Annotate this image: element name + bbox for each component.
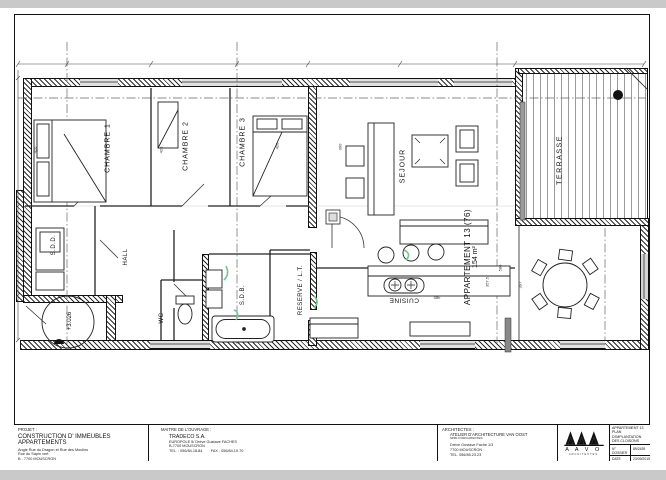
level-mark-text: +3.026 [67, 312, 73, 331]
room-label-cuisine: CUISINE [389, 297, 419, 304]
projet-label: PROJET : [18, 427, 144, 432]
terrace-corner-line [626, 68, 648, 90]
kitchen-counters [310, 318, 470, 338]
bathtub [212, 316, 274, 342]
aavo-logo-icon [564, 430, 604, 446]
room-label-sdd: S.D.D. [51, 235, 57, 256]
titleblock-maitre: MAITRE DE L'OUVRAGE : TRADECO S.A. EUROP… [148, 425, 437, 461]
apartment-label: APPARTEMENT 13 (76) 154 m² [463, 209, 479, 305]
room-label-terrasse: TERRASSE [557, 135, 564, 185]
maitre-label: MAITRE DE L'OUVRAGE : [161, 427, 433, 432]
dim-text: 397 [518, 282, 523, 289]
dim-text: 420 [159, 147, 164, 154]
room-label-chambre2: CHAMBRE 2 [183, 121, 190, 171]
titleblock-info: APPARTEMENT 13 PLAN D'IMPLANTATION DES C… [609, 425, 650, 461]
toilet [176, 296, 194, 324]
floor-plan: CHAMBRE 1 CHAMBRE 2 CHAMBRE 3 SEJOUR TER… [14, 14, 650, 424]
drawing-title: APPARTEMENT 13 PLAN D'IMPLANTATION DES C… [610, 425, 650, 445]
terrace-column [613, 90, 623, 100]
dim-text: 420 [275, 143, 280, 150]
dossier-label: N° DOSSIER [610, 445, 631, 455]
architectes-line3: TEL. 056/85.23.23 [450, 453, 553, 458]
kitchen-island [368, 244, 510, 296]
room-label-chambre1: CHAMBRE 1 [105, 123, 112, 173]
dossier-row: N° DOSSIER 89/2439 [610, 445, 650, 456]
dim-text: 480 [434, 296, 441, 301]
room-label-reserve: RESERVE / L.T. [298, 265, 304, 315]
apartment-name: APPARTEMENT 13 (76) [463, 209, 472, 305]
dim-text: 357.5 [485, 277, 490, 287]
room-label-sejour: SEJOUR [400, 149, 407, 183]
shower-sdd [36, 228, 64, 290]
dim-text: 390 [338, 144, 343, 151]
scanned-drawing-page: CHAMBRE 1 CHAMBRE 2 CHAMBRE 3 SEJOUR TER… [0, 0, 666, 480]
maitre-line3: TEL. : 056/84.18.84 FAX : 056/84.19.70 [169, 449, 433, 454]
title-block: PROJET : CONSTRUCTION D' IMMEUBLES APPAR… [14, 424, 650, 461]
date-value: 23/09/2015 [631, 456, 650, 461]
titleblock-projet: PROJET : CONSTRUCTION D' IMMEUBLES APPAR… [14, 425, 148, 461]
sliding-glass-door [520, 102, 525, 220]
dim-text: 420 [33, 147, 38, 154]
vanity-sdb [206, 270, 222, 308]
room-label-chambre3: CHAMBRE 3 [240, 117, 247, 167]
dining-table [532, 249, 600, 318]
projet-line3: B - 7700 MOUSCRON [18, 457, 144, 461]
titleblock-architectes: ARCHITECTES : ATELIER D'ARCHITECTURE VAN… [437, 425, 557, 461]
room-label-hall: HALL [123, 248, 129, 265]
drawing-title-line3: DES CLOISONS [612, 439, 648, 443]
pilaster [505, 318, 511, 352]
date-label: DATE [610, 456, 631, 461]
door-swings [26, 184, 364, 324]
logo-subtitle: ARCHITECTES [569, 453, 598, 456]
desk-chambre2 [158, 102, 178, 148]
room-label-wc: WC [159, 313, 165, 324]
bed-chambre3 [253, 116, 307, 196]
architectes-subname: SPRL D'ARCHITECTES [450, 437, 553, 441]
plan-linework [14, 14, 650, 424]
apartment-area: 154 m² [472, 209, 479, 305]
drawing-title-line2: PLAN D'IMPLANTATION [612, 430, 648, 439]
dossier-value: 89/2439 [631, 445, 650, 455]
bed-chambre1 [34, 120, 106, 202]
titleblock-logo: A A V O ARCHITECTES [557, 425, 609, 461]
dim-text: 580 [498, 265, 503, 272]
date-row: DATE 23/09/2015 [610, 456, 650, 461]
projet-title: CONSTRUCTION D' IMMEUBLES APPARTEMENTS [18, 434, 144, 446]
room-label-sdb: S.D.B. [240, 285, 246, 305]
